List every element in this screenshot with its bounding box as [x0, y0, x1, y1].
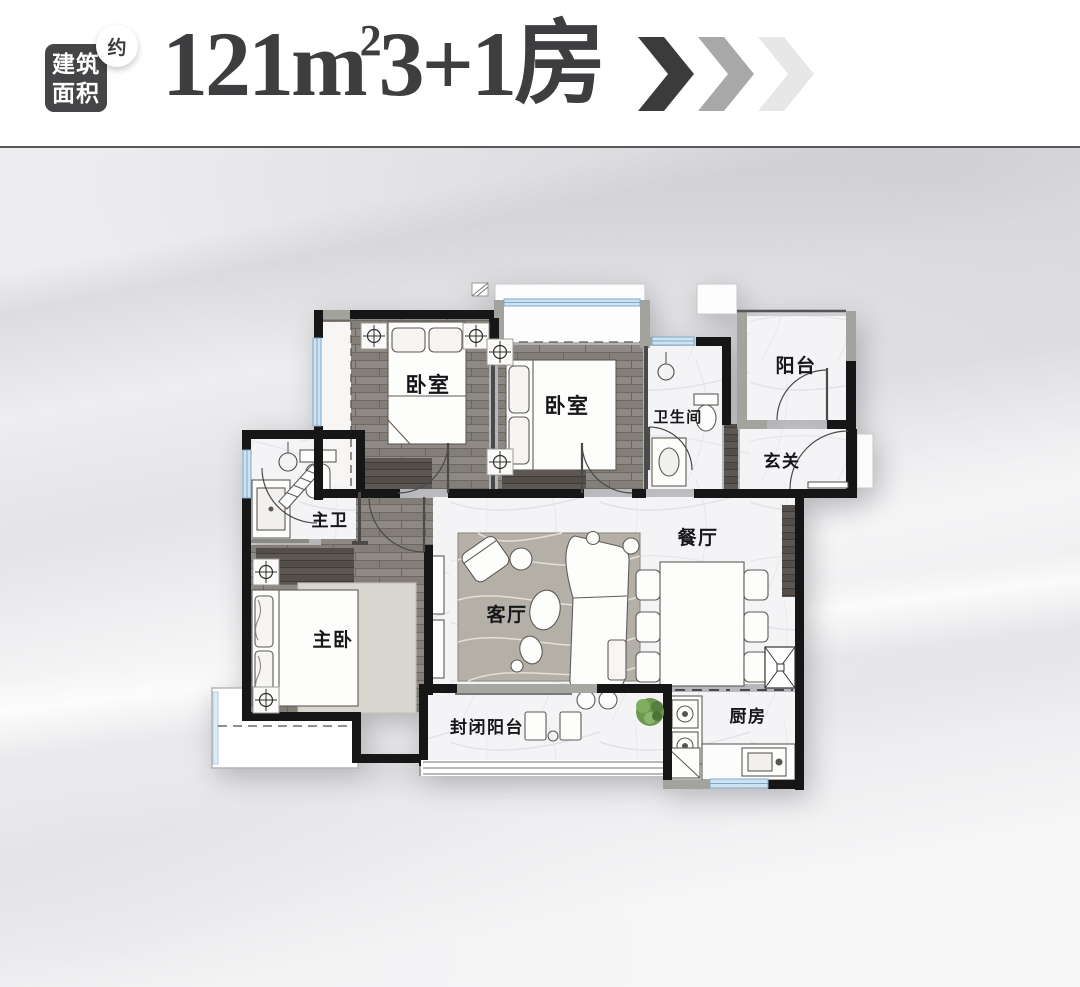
room-label-bedroom-2: 卧室 [545, 394, 590, 418]
dining-table-set [636, 562, 768, 686]
room-label-bedroom-1: 卧室 [406, 373, 451, 397]
room-label-living-room: 客厅 [486, 603, 527, 626]
window-bedroom2-bay [504, 299, 640, 306]
room-label-enclosed-balcony: 封闭阳台 [450, 717, 524, 737]
room-label-foyer: 玄关 [764, 451, 801, 471]
room-label-bathroom: 卫生间 [653, 408, 703, 426]
room-label-dining-room: 餐厅 [677, 526, 718, 549]
window-bedroom1-left [313, 338, 321, 426]
shaft-icon [765, 647, 795, 688]
room-label-master-bedroom: 主卧 [312, 629, 353, 651]
room-label-master-bathroom: 主卫 [312, 510, 349, 530]
approx-circle-badge: 约 [96, 25, 138, 67]
room-label-kitchen: 厨房 [730, 706, 767, 726]
room-label-balcony: 阳台 [775, 354, 816, 377]
plant-icon [636, 698, 664, 726]
stool [511, 660, 523, 672]
floor-plan: 卧室卧室卫生间阳台玄关餐厅客厅主卫主卧封闭阳台厨房 [0, 0, 1080, 987]
window-bathroom [652, 337, 694, 345]
side-table [510, 548, 532, 570]
window-kitchen [710, 779, 768, 788]
north-hatch-icon [472, 283, 488, 296]
window-master-bathroom [243, 450, 251, 498]
balcony-glazing [421, 760, 663, 776]
approx-label: 约 [107, 33, 126, 60]
